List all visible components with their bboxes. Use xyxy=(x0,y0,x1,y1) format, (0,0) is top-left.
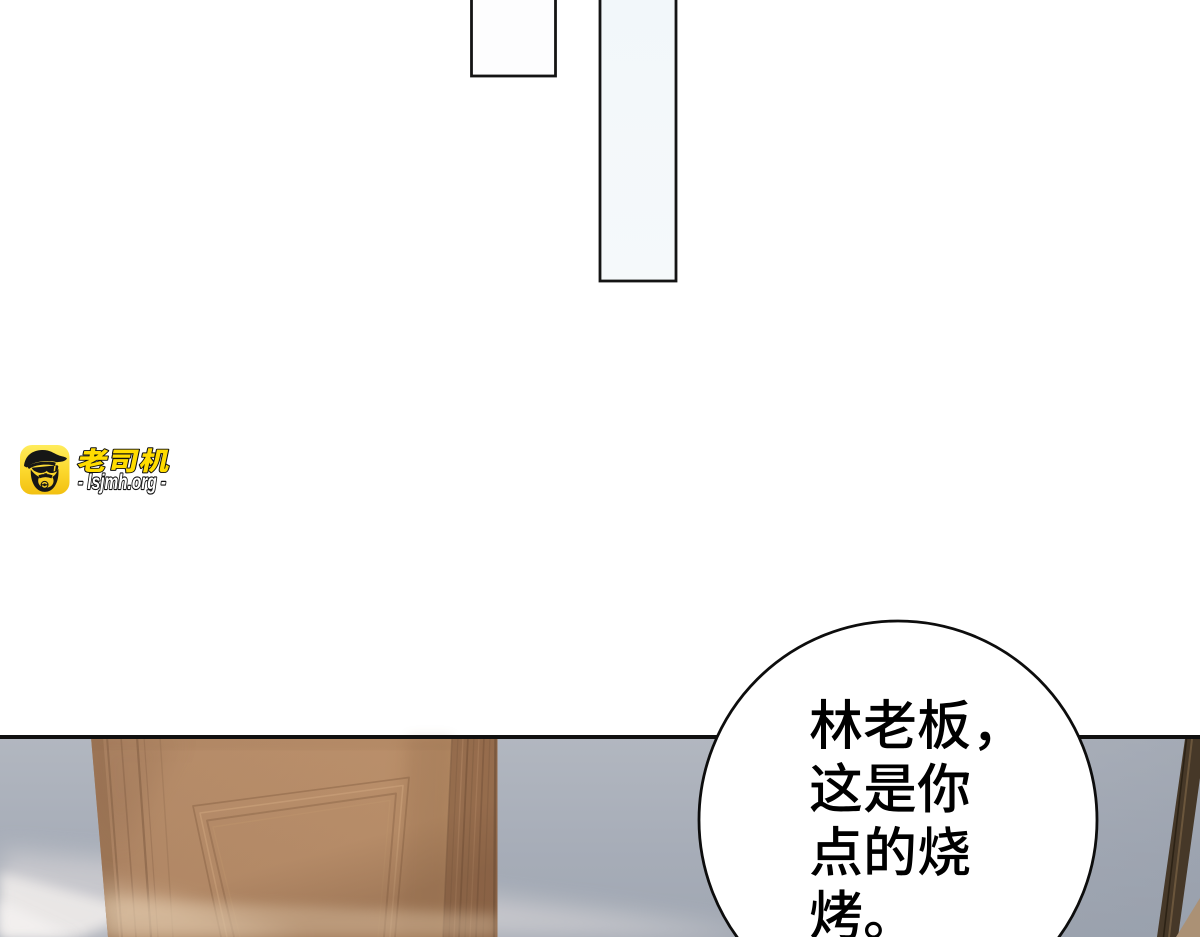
svg-text:- lsjmh.org -: - lsjmh.org - xyxy=(78,471,166,494)
